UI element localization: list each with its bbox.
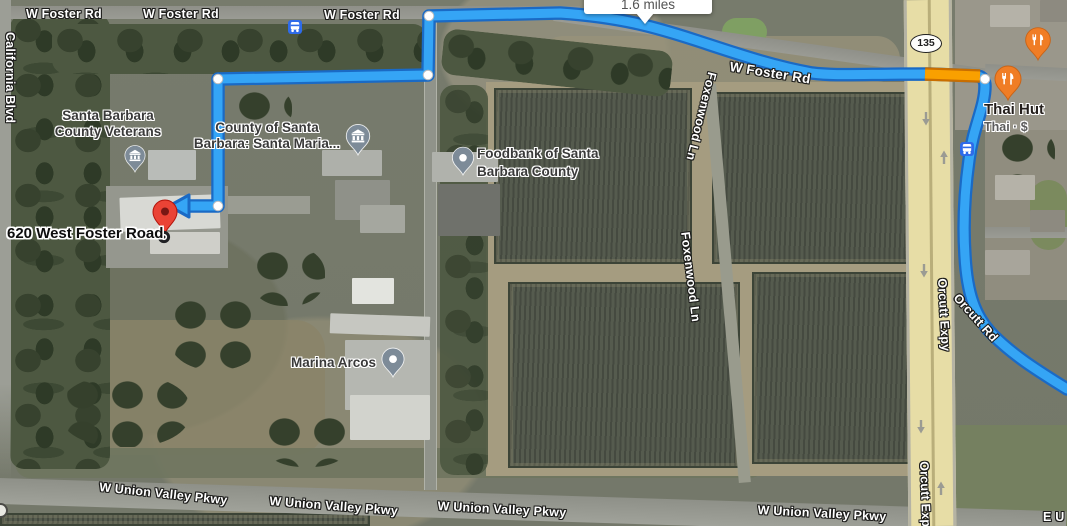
road-label-w-foster-2: W Foster Rd — [143, 7, 219, 21]
one-way-arrow-icon — [920, 264, 928, 278]
route-waypoint-dot[interactable] — [980, 74, 990, 84]
road-label-w-foster-3: W Foster Rd — [324, 8, 400, 22]
government-pin-icon[interactable] — [125, 145, 145, 172]
road-label-california-blvd: California Blvd — [3, 32, 17, 123]
route-traffic-segment[interactable] — [925, 74, 980, 76]
distance-tooltip[interactable]: 1.6 miles — [584, 0, 712, 14]
one-way-arrow-icon — [940, 151, 948, 165]
bus-stop-icon[interactable] — [288, 20, 302, 34]
road-label-orcutt-expy-bottom: Orcutt Expy — [917, 461, 934, 526]
route-waypoint-dot[interactable] — [213, 201, 223, 211]
route-waypoint-dot[interactable] — [424, 11, 434, 21]
one-way-arrow-icon — [937, 482, 945, 496]
place-label-county[interactable]: County of Santa Barbara: Santa Maria... — [186, 120, 348, 152]
restaurant-pin-icon[interactable] — [1026, 28, 1051, 60]
place-label-thai-hut[interactable]: Thai Hut — [984, 102, 1044, 118]
route-waypoint-dot[interactable] — [423, 70, 433, 80]
place-label-marina[interactable]: Marina Arcos — [291, 355, 376, 371]
place-pin-icon[interactable] — [382, 348, 404, 377]
distance-tooltip-text: 1.6 miles — [584, 0, 712, 12]
restaurant-pin-icon[interactable] — [995, 66, 1021, 100]
route-135-shield: 135 — [910, 34, 942, 53]
place-label-line: Barbara: Santa Maria... — [186, 136, 348, 152]
route-overlay — [0, 0, 1067, 526]
place-label-line: Barbara County — [477, 163, 637, 181]
road-label-e-union-partial: E U — [1043, 510, 1064, 524]
place-label-line: County Veterans — [38, 124, 178, 140]
one-way-arrow-icon — [917, 420, 925, 434]
route-waypoint-dot[interactable] — [213, 74, 223, 84]
place-label-line: Foodbank of Santa — [477, 145, 637, 163]
one-way-arrow-icon — [922, 112, 930, 126]
distance-tooltip-pointer-icon — [636, 13, 654, 24]
place-label-foodbank[interactable]: Foodbank of Santa Barbara County — [477, 145, 637, 181]
road-label-w-foster-1: W Foster Rd — [26, 7, 102, 21]
place-label-thai-hut-detail: Thai · $ — [984, 119, 1028, 135]
place-label-line: County of Santa — [186, 120, 348, 136]
place-label-veterans[interactable]: Santa Barbara County Veterans — [38, 108, 178, 140]
place-label-line: Santa Barbara — [38, 108, 178, 124]
bus-stop-icon[interactable] — [960, 142, 974, 156]
destination-label: 620 West Foster Road — [7, 225, 163, 242]
satellite-map[interactable]: W Foster Rd W Foster Rd W Foster Rd W Fo… — [0, 0, 1067, 526]
place-pin-icon[interactable] — [452, 147, 473, 175]
government-pin-icon[interactable] — [346, 124, 369, 155]
